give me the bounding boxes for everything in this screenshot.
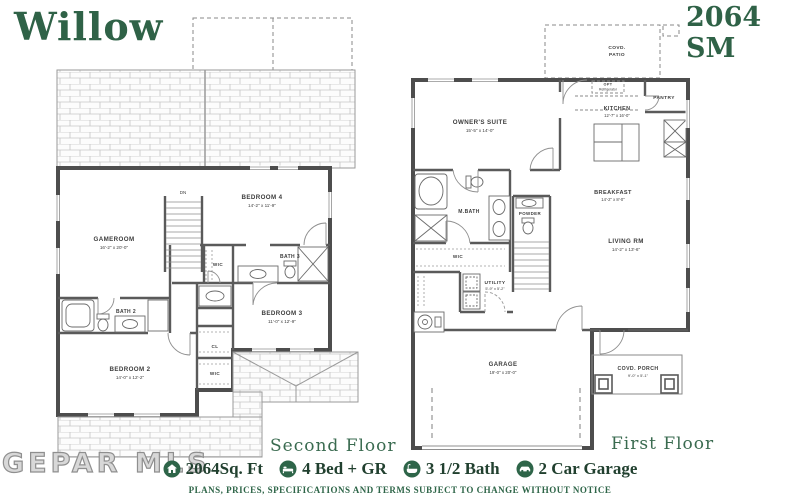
oven-stack-icon <box>664 120 686 157</box>
room-label-living-rm: LIVING RM <box>608 238 644 245</box>
garage-item: 2 Car Garage <box>516 459 638 479</box>
room-label-bath2: BATH 2 <box>116 309 136 315</box>
room-label-bedroom4: BEDROOM 4 <box>241 194 282 201</box>
bed-icon <box>279 460 297 478</box>
patio-outline <box>545 25 679 78</box>
room-dims-utility: 5'-9" x 5'-2" <box>485 287 505 291</box>
room-label-covd-patio-1: COVD. <box>608 45 625 51</box>
toilet-tank-icon <box>466 176 471 188</box>
stairs-dn-label: DN <box>180 190 187 195</box>
baths-item: 3 1/2 Bath <box>403 459 500 479</box>
room-label-owners-suite: OWNER'S SUITE <box>453 119 507 126</box>
footer-summary: 2064Sq. Ft 4 Bed + GR 3 1/2 Bath 2 Car G… <box>0 459 800 479</box>
first-floor-label: First Floor <box>611 434 714 454</box>
toilet-icon <box>471 177 483 187</box>
room-label-kitchen: KITCHEN <box>604 106 631 112</box>
room-dims-bedroom3: 11'-0" x 12'-9" <box>268 319 296 324</box>
room-label-opt-refrigerator-1: OPT <box>603 83 612 87</box>
kitchen-island <box>594 124 639 161</box>
sink-icon <box>123 320 138 329</box>
toilet-icon <box>523 222 533 234</box>
sink-icon <box>493 200 505 215</box>
porch-post <box>661 375 678 393</box>
floorplan-sheet: { "header": { "plan_name": "Willow", "pl… <box>0 0 800 500</box>
sink-icon <box>493 222 505 237</box>
sqft-label: 2064Sq. Ft <box>186 459 263 479</box>
disclaimer-text: PLANS, PRICES, SPECIFICATIONS AND TERMS … <box>0 485 800 495</box>
room-label-powder: POWDER <box>519 211 542 216</box>
room-label-garage: GARAGE <box>489 362 518 368</box>
bath-icon <box>403 460 421 478</box>
hall-vanity <box>199 286 231 306</box>
room-dims-breakfast: 14'-2" x 8'-0" <box>601 197 625 202</box>
car-icon <box>516 460 534 478</box>
toilet-icon <box>285 266 295 278</box>
room-label-bedroom2: BEDROOM 2 <box>109 366 150 373</box>
room-label-breakfast: BREAKFAST <box>594 190 632 196</box>
beds-label: 4 Bed + GR <box>302 459 387 479</box>
room-dims-bedroom4: 14'-2" x 11'-9" <box>248 203 276 208</box>
sqft-item: 2064Sq. Ft <box>163 459 263 479</box>
room-label-wic-hall: WIC <box>213 262 223 267</box>
room-dims-kitchen: 12'-7" x 16'-0" <box>604 113 630 118</box>
roof-hatch-top <box>57 70 355 168</box>
toilet-tank-icon <box>284 261 296 266</box>
bathtub-icon <box>62 300 94 331</box>
room-dims-garage: 19'-0" x 20'-0" <box>489 370 516 375</box>
toilet-icon <box>98 319 108 331</box>
room-dims-gameroom: 16'-2" x 20'-0" <box>100 245 129 250</box>
room-dims-owners-suite: 15'-5" x 14'-0" <box>466 128 495 133</box>
room-label-opt-refrigerator-2: Refrigerator <box>599 88 618 92</box>
bathtub-icon <box>415 174 447 209</box>
sink-icon <box>206 291 224 301</box>
garage-door <box>422 445 582 451</box>
room-dims-bedroom2: 14'-0" x 12'-2" <box>116 375 145 380</box>
room-label-bedroom3: BEDROOM 3 <box>261 310 302 317</box>
sink-icon <box>250 270 266 279</box>
second-floor-label: Second Floor <box>270 436 397 456</box>
room-label-closet: CL <box>212 344 219 349</box>
roof-dashed-outline <box>193 18 352 70</box>
baths-label: 3 1/2 Bath <box>426 459 500 479</box>
floorplan-drawing: DN <box>0 0 800 460</box>
room-label-bath3: BATH 3 <box>280 254 300 260</box>
room-dims-covd-porch: 9'-0" x 5'-1" <box>628 373 649 378</box>
garage-label: 2 Car Garage <box>539 459 638 479</box>
room-label-wic: WIC <box>453 254 463 259</box>
room-label-mbath: M.BATH <box>458 209 479 215</box>
room-dims-living-rm: 14'-2" x 13'-6" <box>612 247 641 252</box>
beds-item: 4 Bed + GR <box>279 459 387 479</box>
toilet-tank-icon <box>97 314 109 319</box>
room-label-gameroom: GAMEROOM <box>93 236 134 243</box>
shower-icon <box>148 300 168 331</box>
sink-icon <box>522 200 536 207</box>
first-floor-plan: COVD. PATIO <box>411 25 691 451</box>
room-label-covd-porch: COVD. PORCH <box>617 366 658 372</box>
house-icon <box>163 460 181 478</box>
room-label-covd-patio-2: PATIO <box>609 52 625 58</box>
room-label-wic-bedroom2: WIC <box>210 371 220 376</box>
porch-post <box>595 375 612 393</box>
room-label-pantry: PANTRY <box>653 95 675 101</box>
second-floor-plan: DN <box>56 18 359 457</box>
room-label-utility: UTILITY <box>485 280 506 286</box>
water-heater-icon <box>414 312 444 332</box>
